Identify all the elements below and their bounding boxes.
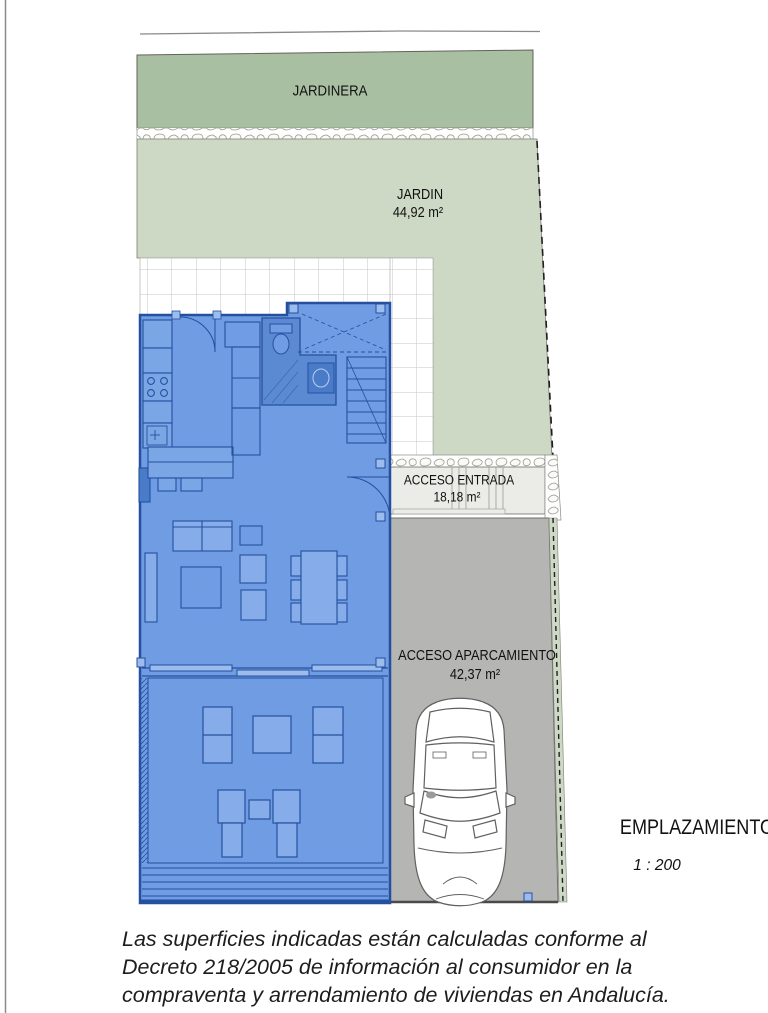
terrace-table	[253, 716, 291, 753]
footer-note-line: compraventa y arrendamiento de viviendas…	[122, 981, 742, 1009]
drawing-scale: 1 : 200	[633, 857, 680, 875]
car-rear-window	[426, 708, 494, 742]
car-icon	[405, 698, 515, 906]
acceso-aparcamiento-area-value: 42,37 m²	[450, 668, 500, 683]
tv-unit	[145, 553, 157, 622]
acceso-aparcamiento-label: ACCESO APARCAMIENTO	[398, 649, 556, 664]
terrace-armchair	[273, 790, 300, 857]
pebble-strip-top	[137, 128, 533, 139]
site-plan-page: JARDINERA JARDIN 44,92 m² ACCESO ENTRADA…	[0, 0, 768, 1013]
stove-icon	[143, 373, 172, 401]
terrace-armchair	[218, 790, 245, 857]
lounge-chair	[313, 707, 343, 763]
footer-note-line: Decreto 218/2005 de información al consu…	[122, 953, 742, 981]
sofa	[173, 521, 232, 551]
pouf	[240, 555, 266, 583]
sink-icon	[143, 423, 172, 448]
pouf	[241, 590, 266, 620]
entrance-area	[390, 455, 561, 520]
dining-set	[291, 551, 347, 624]
jardin-label: JARDIN	[397, 188, 443, 203]
car-roof	[424, 743, 496, 791]
footer-note: Las superficies indicadas están calculad…	[122, 925, 742, 1009]
lounge-chair	[203, 707, 232, 763]
footer-note-line: Las superficies indicadas están calculad…	[122, 925, 742, 953]
acceso-entrada-area-value: 18,18 m²	[434, 490, 481, 504]
jardinera-label: JARDINERA	[293, 84, 368, 99]
washbasin-icon	[308, 363, 334, 393]
jardin-area-value: 44,92 m²	[393, 206, 443, 221]
acceso-entrada-label: ACCESO ENTRADA	[404, 473, 514, 487]
drawing-title: EMPLAZAMIENTO	[620, 816, 768, 840]
terrace-small-table	[249, 800, 270, 819]
